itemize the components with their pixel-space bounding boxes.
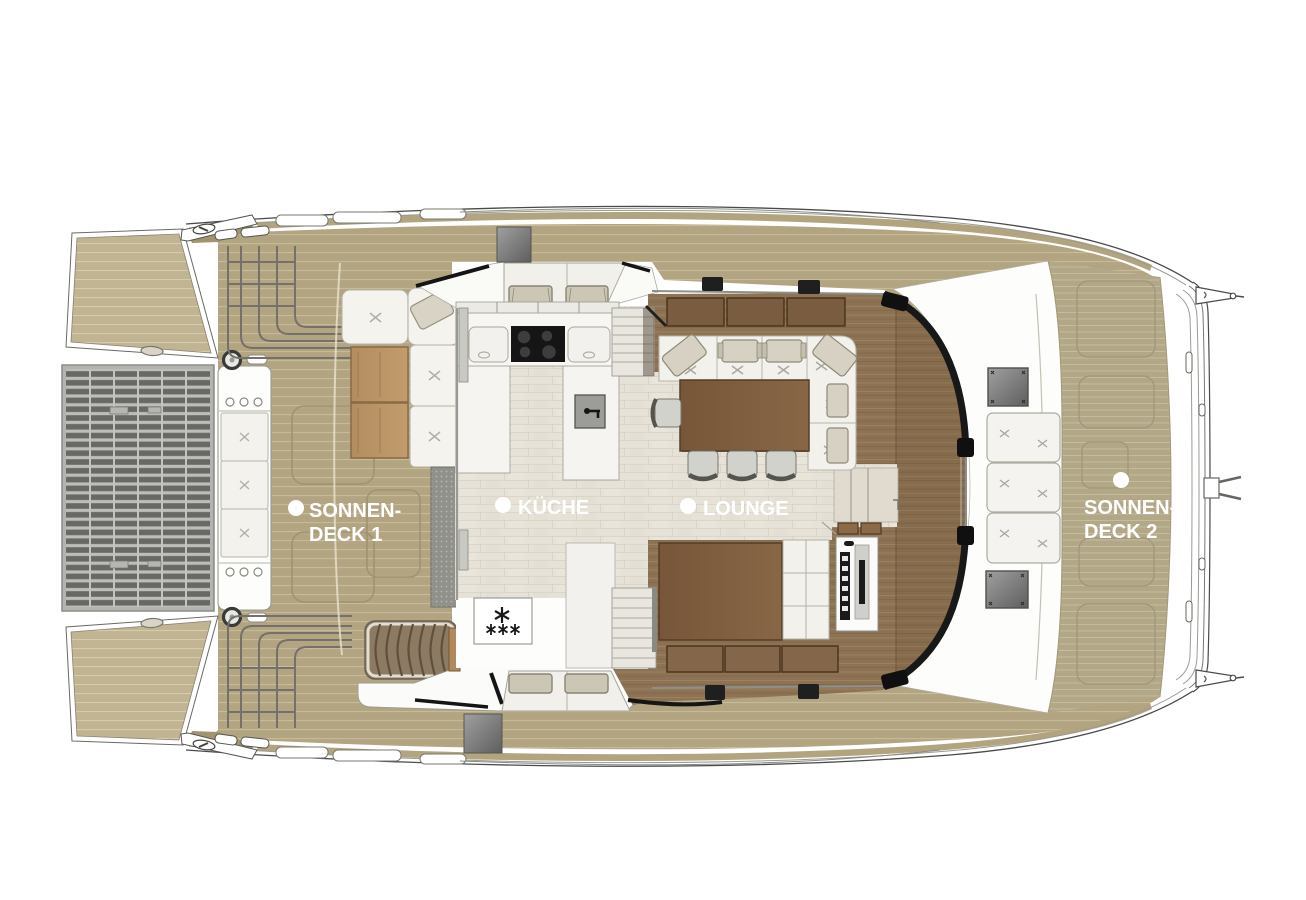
svg-text:KÜCHE: KÜCHE <box>518 496 589 519</box>
svg-text:SONNEN-: SONNEN- <box>309 500 401 522</box>
svg-text:DECK 1: DECK 1 <box>309 524 382 546</box>
svg-text:DECK 2: DECK 2 <box>1084 521 1157 543</box>
svg-text:LOUNGE: LOUNGE <box>703 498 789 520</box>
svg-text:SONNEN-: SONNEN- <box>1084 497 1176 519</box>
